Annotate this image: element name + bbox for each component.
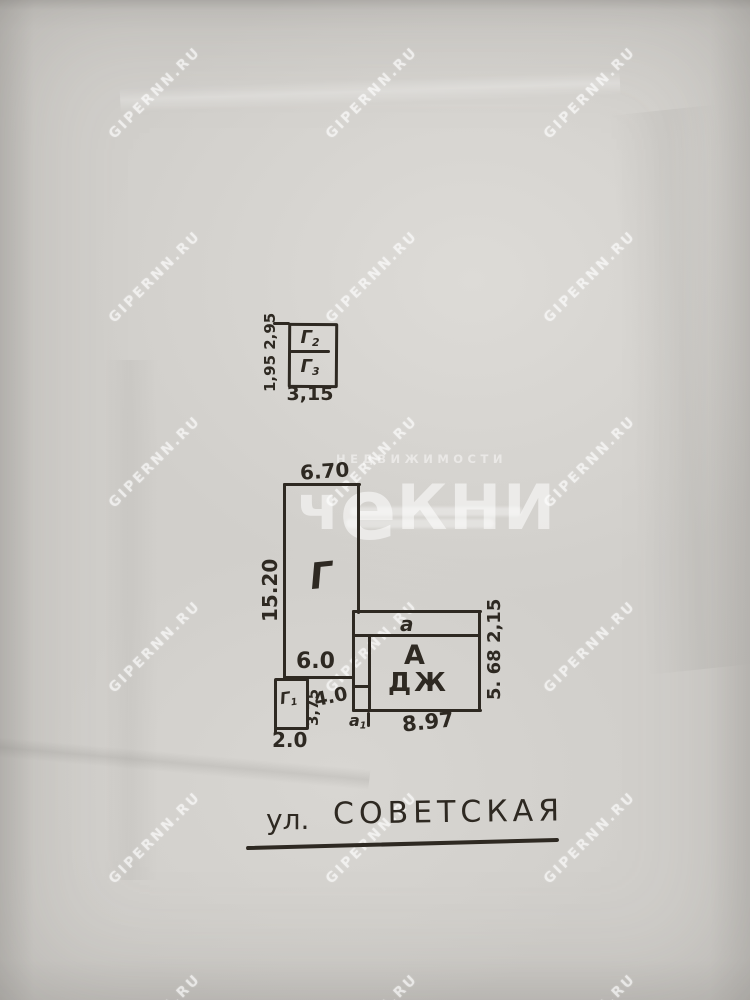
- watermark-text: GIPERNN.RU: [106, 971, 204, 1000]
- dim-g1-bottom: 2.0: [272, 728, 307, 752]
- street-prefix: ул.: [266, 803, 309, 836]
- dim-main-left: 15.20: [258, 559, 282, 622]
- watermark-text: GIPERNN.RU: [106, 598, 204, 696]
- watermark-text: GIPERNN.RU: [323, 228, 421, 326]
- street-name: Советская: [333, 793, 565, 831]
- main-wall-top: [283, 483, 361, 486]
- house-wall-top: [352, 610, 482, 613]
- outbuilding-divider: [290, 350, 330, 353]
- house-wall-left: [352, 610, 355, 712]
- house-inner-wall-left: [368, 634, 371, 712]
- dim-house-bottom: 8.97: [401, 707, 455, 736]
- dim-main-top: 6.70: [299, 457, 350, 484]
- porch-wall-top: [352, 685, 371, 688]
- dim-main-bottom: 6.0: [296, 649, 335, 674]
- watermark-text: GIPERNN.RU: [541, 413, 639, 511]
- room-label-g2: Г2: [288, 327, 332, 349]
- dim-outbuilding-left: 1,95 2,95: [261, 313, 279, 392]
- house-veranda-divider: [352, 634, 480, 637]
- watermark-text: GIPERNN.RU: [541, 44, 639, 142]
- house-wall-right: [478, 610, 481, 712]
- g1-tick: [274, 724, 277, 734]
- watermark-text: GIPERNN.RU: [106, 44, 204, 142]
- paper-crease: [70, 360, 180, 880]
- dim-gap: 4.0: [312, 683, 350, 712]
- house-litera: А: [404, 640, 425, 671]
- plan-photo: GIPERNN.RUGIPERNN.RUGIPERNN.RUGIPERNN.RU…: [0, 0, 750, 1000]
- porch-label: а1: [349, 711, 366, 732]
- paper-crease: [531, 99, 750, 681]
- room-label-g: Г: [308, 555, 335, 598]
- porch-tick: [367, 712, 370, 727]
- watermark-text: GIPERNN.RU: [106, 228, 204, 326]
- watermark-text: GIPERNN.RU: [106, 789, 204, 887]
- main-wall-right: [357, 483, 360, 614]
- dim-house-right: 5. 68 2,15: [484, 599, 505, 700]
- main-wall-left: [283, 483, 286, 680]
- watermark-text: GIPERNN.RU: [541, 971, 639, 1000]
- watermark-text: GIPERNN.RU: [106, 413, 204, 511]
- room-label-g3: Г3: [288, 356, 332, 378]
- room-label-g1: Г1: [273, 686, 305, 711]
- watermark-text: GIPERNN.RU: [323, 971, 421, 1000]
- dim-outbuilding-bottom: 3,15: [286, 383, 334, 405]
- veranda-label: а: [400, 612, 414, 636]
- watermark-text: GIPERNN.RU: [541, 228, 639, 326]
- house-note: ДЖ: [388, 668, 449, 698]
- watermark-text: GIPERNN.RU: [541, 598, 639, 696]
- logo-brand-rest: КНИ: [397, 471, 557, 544]
- watermark-text: GIPERNN.RU: [323, 44, 421, 142]
- logo-tagline-blur: [346, 519, 494, 528]
- street-underline: [246, 838, 559, 850]
- logo-tagline-blur: [350, 507, 522, 516]
